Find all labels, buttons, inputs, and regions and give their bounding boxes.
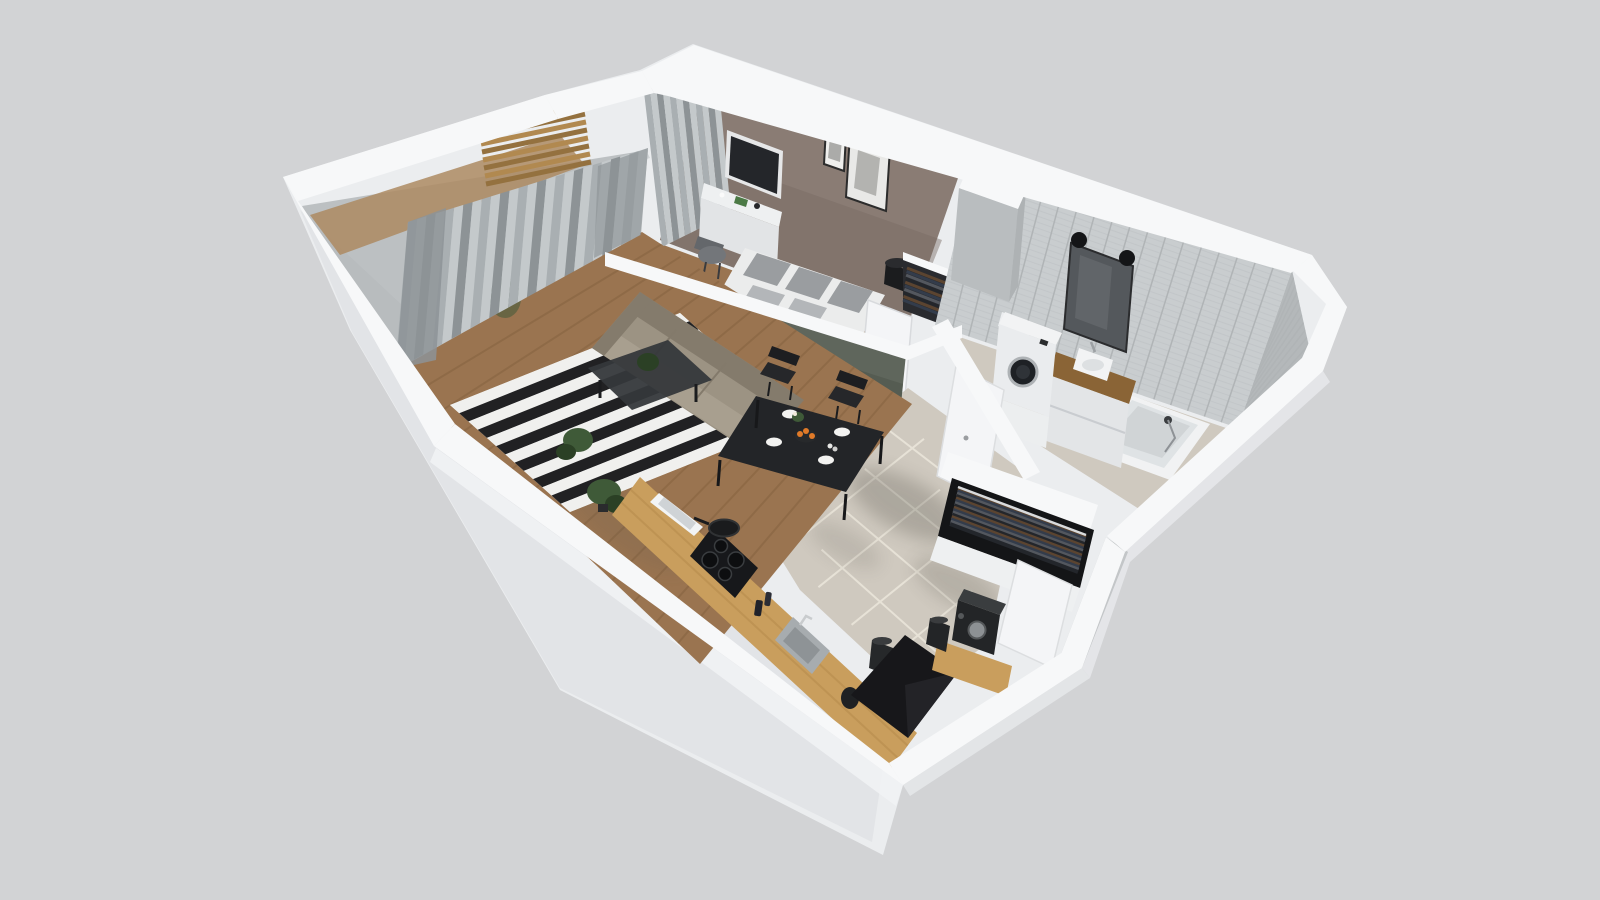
plate <box>818 456 834 465</box>
grinder2-cap <box>930 617 948 624</box>
door-handle <box>964 436 969 441</box>
orange <box>809 433 815 439</box>
burner <box>702 552 718 568</box>
burner <box>719 568 732 581</box>
mirror-hanger <box>1071 232 1087 248</box>
plate <box>834 428 850 437</box>
plant-pot <box>598 504 608 512</box>
grinder-cap <box>872 637 892 645</box>
sink-basin <box>1082 359 1104 371</box>
plant-leaves <box>556 444 576 460</box>
table-leg <box>756 400 758 428</box>
mirror-hanger <box>1119 250 1135 266</box>
desk-chair-seat <box>698 246 726 264</box>
shaker <box>833 447 838 452</box>
table-leg <box>880 436 882 464</box>
orange <box>803 428 809 434</box>
coffee-machine-dial <box>969 622 986 639</box>
frying-pan <box>709 520 739 537</box>
desk-deco <box>720 193 725 198</box>
burner <box>728 552 744 568</box>
washer-door-glass <box>1016 365 1030 379</box>
mirror-reflection <box>1075 255 1112 330</box>
flower-bloom <box>793 412 797 416</box>
floorplan-canvas <box>0 0 1600 900</box>
desk-clock <box>754 203 760 209</box>
orange <box>797 431 803 437</box>
floorplan-render <box>0 0 1600 900</box>
shaker <box>828 444 833 449</box>
frame-art-smudge <box>854 150 880 196</box>
burner <box>715 540 728 553</box>
table-leg <box>718 460 720 486</box>
coffee-table-plant <box>637 353 659 371</box>
table-leg <box>844 494 846 520</box>
plate <box>766 438 782 447</box>
coffee-machine-button <box>958 613 964 619</box>
